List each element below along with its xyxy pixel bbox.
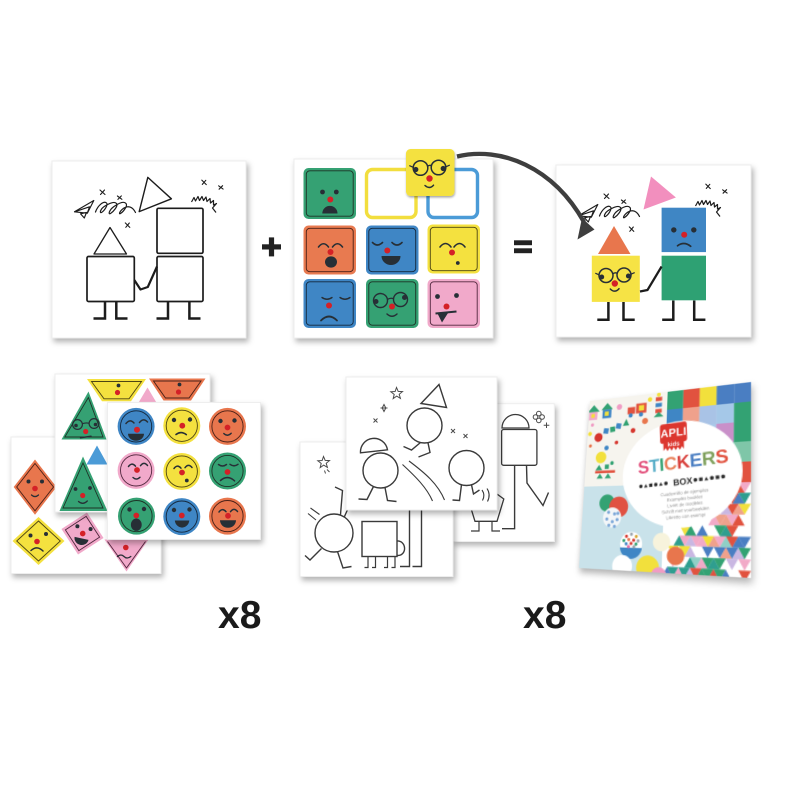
svg-text:x8: x8 <box>218 594 261 637</box>
svg-text:x8: x8 <box>523 594 566 637</box>
svg-text:kids: kids <box>667 439 680 448</box>
